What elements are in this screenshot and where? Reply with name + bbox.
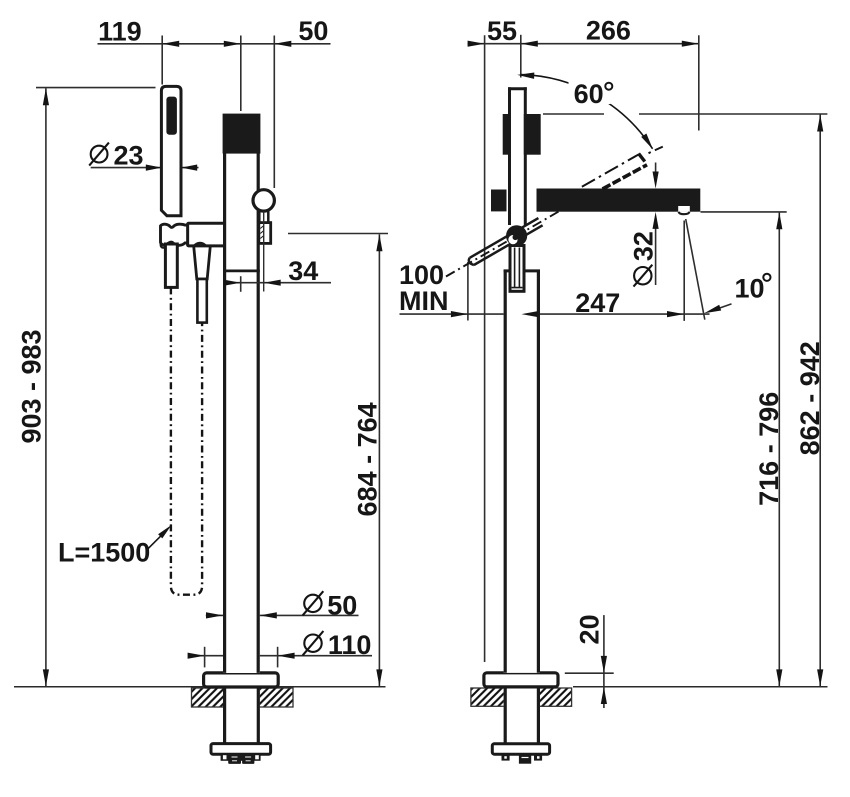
svg-text:862 - 942: 862 - 942 (795, 341, 825, 455)
svg-text:50: 50 (298, 16, 328, 46)
svg-text:110: 110 (328, 630, 372, 660)
svg-text:119: 119 (98, 16, 142, 46)
svg-text:903 - 983: 903 - 983 (16, 329, 46, 443)
svg-text:32: 32 (628, 231, 658, 261)
svg-text:50: 50 (327, 590, 357, 620)
svg-text:684 - 764: 684 - 764 (353, 402, 383, 516)
svg-text:247: 247 (575, 288, 620, 318)
svg-text:L=1500: L=1500 (58, 538, 150, 568)
svg-text:60: 60 (574, 79, 604, 109)
svg-text:266: 266 (586, 16, 631, 46)
svg-text:20: 20 (575, 614, 605, 644)
svg-text:55: 55 (487, 16, 517, 46)
svg-text:MIN: MIN (399, 286, 449, 316)
svg-text:23: 23 (113, 141, 143, 171)
svg-text:34: 34 (288, 256, 318, 286)
svg-text:10: 10 (734, 274, 764, 304)
svg-text:716 - 796: 716 - 796 (754, 392, 784, 506)
